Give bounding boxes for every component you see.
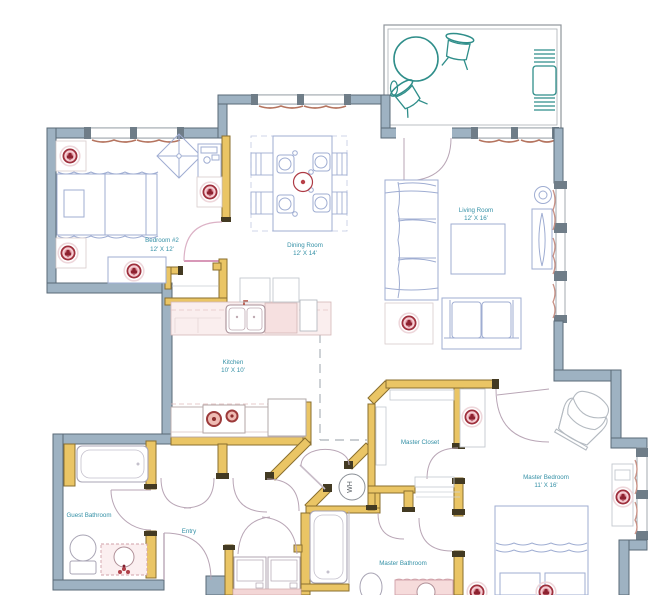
svg-text:Dining Room: Dining Room — [287, 242, 323, 249]
svg-text:Living Room: Living Room — [459, 207, 493, 214]
svg-text:10' X 10': 10' X 10' — [221, 367, 245, 374]
svg-text:Kitchen: Kitchen — [223, 359, 244, 366]
svg-text:12' X 12': 12' X 12' — [150, 246, 174, 253]
svg-text:WH: WH — [347, 481, 354, 493]
svg-text:Master Bathroom: Master Bathroom — [379, 560, 426, 567]
svg-text:Entry: Entry — [182, 528, 197, 535]
svg-text:12' X 14': 12' X 14' — [293, 250, 317, 257]
svg-text:Master Bedroom: Master Bedroom — [523, 474, 569, 481]
svg-text:Guest Bathroom: Guest Bathroom — [66, 512, 111, 519]
svg-text:Master Closet: Master Closet — [401, 439, 439, 446]
svg-text:12' X 16': 12' X 16' — [464, 215, 488, 222]
svg-text:Bedroom #2: Bedroom #2 — [145, 237, 179, 244]
svg-text:11' X 16': 11' X 16' — [534, 482, 557, 489]
